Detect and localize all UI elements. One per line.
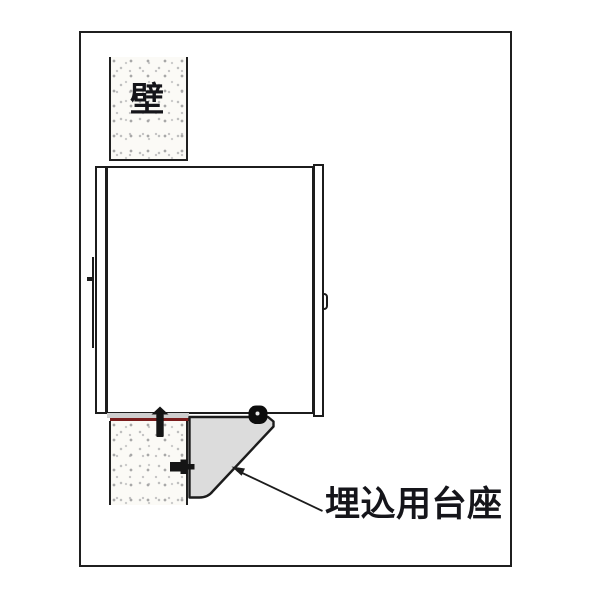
installation-diagram: 壁 埋込用台座 — [0, 0, 600, 600]
leader-line — [232, 467, 323, 512]
fixing-bolt — [249, 406, 268, 425]
anchor-bolt — [152, 407, 169, 438]
pedestal-label: 埋込用台座 — [325, 487, 503, 524]
embedded-pedestal-shape — [190, 417, 274, 498]
overlay-graphics — [0, 0, 600, 600]
